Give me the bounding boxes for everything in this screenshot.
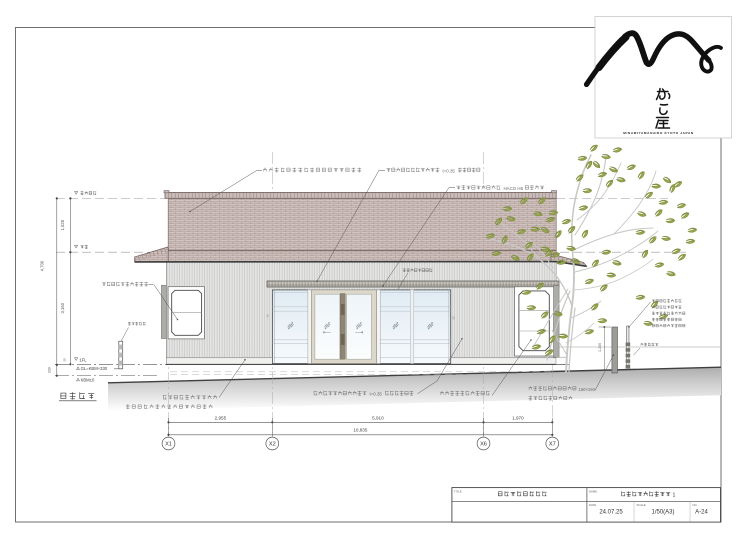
svg-text:X7: X7 (549, 442, 556, 448)
svg-text:3,160: 3,160 (60, 302, 65, 313)
svg-text:MINAMIYAMASHIRO KYOTO JAPAN: MINAMIYAMASHIRO KYOTO JAPAN (623, 131, 694, 135)
svg-text:A-24: A-24 (695, 509, 708, 515)
svg-text:20: 20 (63, 358, 67, 362)
svg-text:KBM±0: KBM±0 (81, 378, 95, 383)
svg-text:1/50(A3): 1/50(A3) (651, 509, 674, 515)
svg-text:1: 1 (673, 493, 676, 499)
svg-text:30: 30 (451, 316, 455, 320)
svg-text:X1: X1 (165, 442, 172, 448)
svg-text:DATE: DATE (589, 503, 596, 507)
svg-text:SCALE: SCALE (637, 503, 646, 507)
svg-text:4,706: 4,706 (40, 260, 45, 271)
svg-text:1,970: 1,970 (512, 415, 524, 420)
svg-text:X6: X6 (480, 442, 487, 448)
svg-text:NO.: NO. (693, 503, 698, 507)
svg-text:GL=KBM+330: GL=KBM+330 (81, 366, 108, 371)
svg-text:2,955: 2,955 (215, 415, 227, 420)
svg-text:10,835: 10,835 (353, 428, 367, 433)
svg-text:1FL: 1FL (79, 358, 87, 363)
svg-text:330: 330 (48, 367, 52, 373)
svg-text:30: 30 (265, 314, 269, 318)
svg-text:t=0.35: t=0.35 (370, 392, 383, 397)
svg-text:HACO H6: HACO H6 (504, 186, 524, 191)
svg-text:5,910: 5,910 (372, 415, 384, 420)
svg-text:TITLE: TITLE (454, 489, 462, 493)
svg-text:X2: X2 (269, 442, 276, 448)
svg-text:1,200: 1,200 (598, 343, 602, 352)
svg-text:24.07.25: 24.07.25 (599, 509, 623, 515)
svg-text:NAME: NAME (589, 489, 597, 493)
svg-text:1,528: 1,528 (60, 219, 65, 230)
svg-text:150×150: 150×150 (579, 387, 596, 392)
svg-text:t=0.35: t=0.35 (443, 168, 456, 173)
